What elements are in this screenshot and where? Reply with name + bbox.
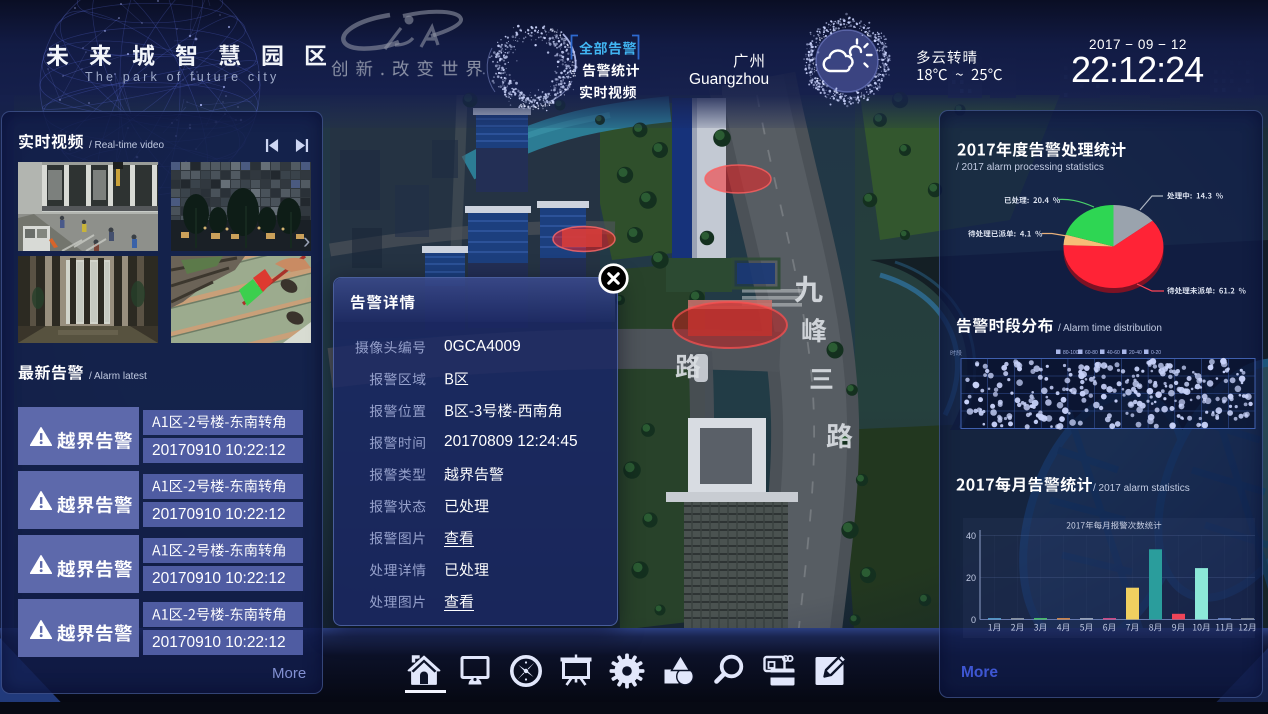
svg-text:0: 0 xyxy=(971,615,976,625)
svg-text:20: 20 xyxy=(966,573,976,583)
svg-text:60-80: 60-80 xyxy=(1085,350,1098,356)
svg-text:0-20: 0-20 xyxy=(1151,350,1161,356)
svg-text:40-60: 40-60 xyxy=(1107,350,1120,356)
svg-text:80-100: 80-100 xyxy=(1063,350,1079,356)
svg-text:20-40: 20-40 xyxy=(1129,350,1142,356)
svg-text:40: 40 xyxy=(966,531,976,541)
